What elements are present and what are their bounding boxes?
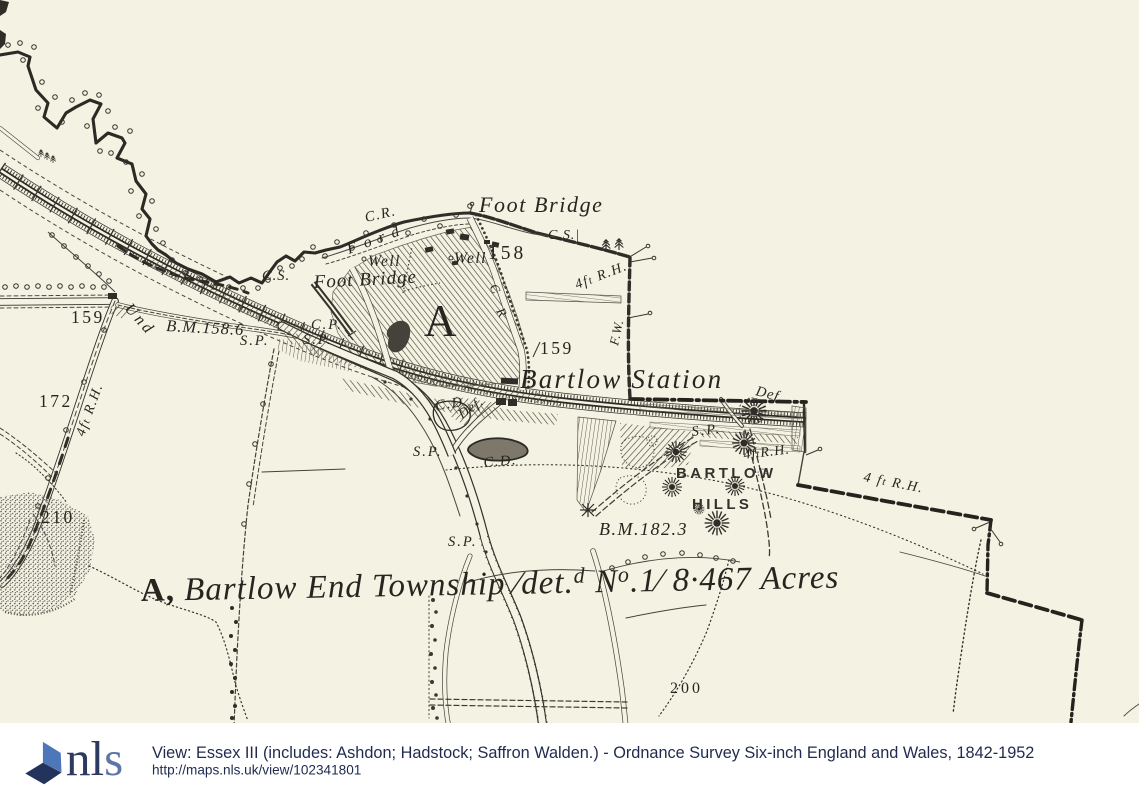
- svg-text:B.M.182.3: B.M.182.3: [599, 519, 688, 539]
- svg-text:C.P.: C.P.: [311, 317, 343, 333]
- svg-text:Bartlow Station: Bartlow Station: [520, 364, 723, 394]
- svg-text:S.P.: S.P.: [413, 444, 443, 460]
- svg-text:BARTLOW: BARTLOW: [676, 465, 776, 482]
- svg-text:Well: Well: [454, 250, 487, 267]
- svg-text:nls: nls: [66, 731, 123, 786]
- svg-text:210: 210: [41, 507, 75, 527]
- svg-text:C.S.|: C.S.|: [548, 228, 580, 243]
- svg-text:159: 159: [540, 338, 574, 358]
- svg-text:View: Essex III (includes: Ash: View: Essex III (includes: Ashdon; Hadst…: [152, 744, 1034, 762]
- svg-text:S.P.: S.P.: [240, 333, 270, 349]
- svg-text:S.P.: S.P.: [691, 421, 722, 440]
- svg-text:200: 200: [670, 680, 703, 697]
- svg-text:159: 159: [71, 307, 105, 327]
- svg-text:http://maps.nls.uk/view/102341: http://maps.nls.uk/view/102341801: [152, 763, 361, 778]
- svg-text:158: 158: [488, 243, 526, 264]
- svg-text:S.P.: S.P.: [448, 534, 478, 550]
- svg-text:A: A: [424, 296, 457, 346]
- svg-text:Foot Bridge: Foot Bridge: [478, 192, 604, 217]
- svg-text:C.D.: C.D.: [483, 452, 518, 471]
- svg-text:HILLS: HILLS: [692, 496, 752, 513]
- svg-text:S.P.: S.P.: [303, 332, 333, 348]
- svg-text:172: 172: [39, 391, 73, 411]
- svg-text:Well: Well: [368, 253, 401, 270]
- svg-text:C.S.: C.S.: [262, 268, 290, 284]
